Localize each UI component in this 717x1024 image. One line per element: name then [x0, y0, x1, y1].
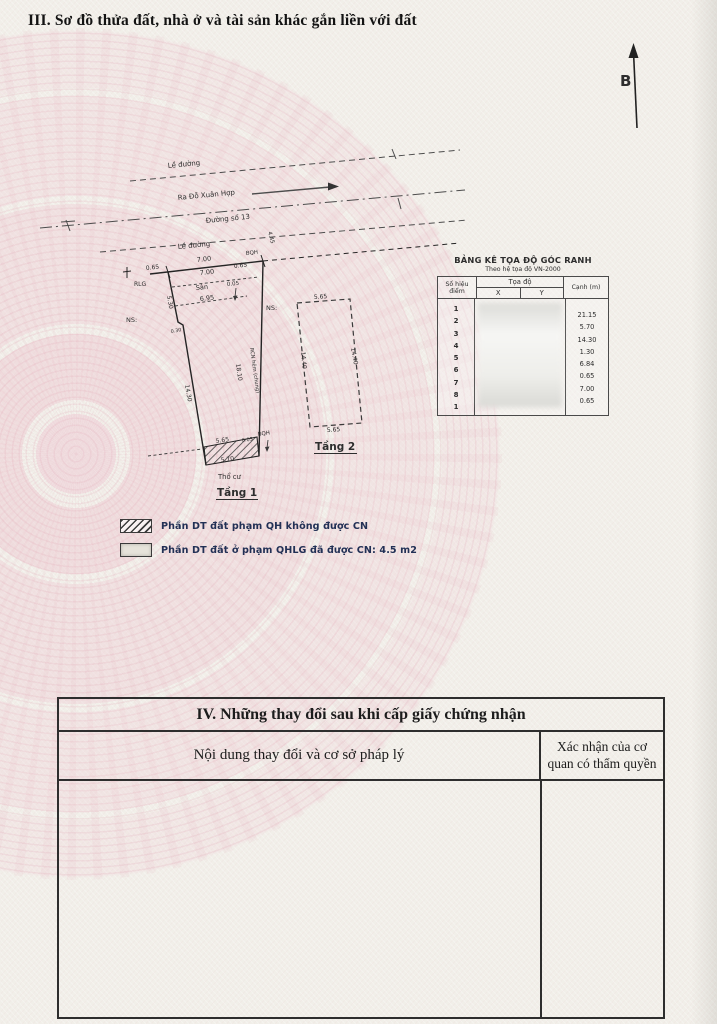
dim-right-side: 18.10	[234, 363, 243, 381]
col-authority-confirmation: Xác nhận của cơ quan có thẩm quyền	[541, 732, 663, 779]
col-point-number: Số hiệu điểm	[438, 277, 477, 298]
mark-rlg: RLG	[134, 281, 147, 288]
section4-table: IV. Những thay đổi sau khi cấp giấy chứn…	[57, 697, 665, 1019]
col-y: Y	[521, 288, 564, 298]
redacted-coordinates	[475, 299, 565, 415]
dim-offset-right: 0.65	[233, 262, 247, 270]
floor2-dim-left: 14.40	[299, 351, 308, 369]
bqh-arrowhead	[265, 447, 270, 453]
floor1-outline	[123, 243, 460, 465]
col-change-content: Nội dung thay đổi và cơ sở pháp lý	[59, 732, 541, 779]
sidewalk-top-label: Lề đường	[167, 159, 200, 170]
floor1-inner-lines	[148, 277, 268, 456]
page-edge-shadow	[691, 0, 717, 1024]
dim-left-jog: 0.30	[170, 327, 182, 335]
floor2-dim-bottom: 5.65	[327, 426, 341, 434]
legend-item-2: Phần DT đất ở phạm QHLG đã được CN: 4.5 …	[120, 543, 417, 557]
dim-offset-left: 0.65	[145, 264, 159, 272]
dim-hatch-bottom: 5.70	[220, 455, 234, 464]
point-numbers: 12 34 56 78 1	[438, 299, 475, 415]
dim-gap-top: 0.05	[227, 281, 240, 288]
sidewalk-bottom-label: Lề đường	[177, 240, 210, 251]
north-label: B	[620, 72, 631, 90]
floor2-dim-top: 5.65	[314, 293, 328, 301]
edge-lengths: 21.155.70 14.301.30 6.840.65 7.000.65	[565, 299, 608, 415]
floor1-label: Tầng 1	[217, 487, 257, 499]
mark-ns-left: NS:	[126, 316, 137, 324]
light-swatch-icon	[120, 543, 152, 557]
legend: Phần DT đất phạm QH không được CN Phần D…	[120, 519, 417, 567]
land-type-label: Thổ cư	[217, 472, 242, 481]
legend-item-1: Phần DT đất phạm QH không được CN	[120, 519, 417, 533]
section4-title: IV. Những thay đổi sau khi cấp giấy chứn…	[59, 699, 663, 730]
dim-4-45: 4.45	[266, 231, 275, 245]
col-coordinates: Tọa độ	[477, 277, 563, 288]
legend-item-1-label: Phần DT đất phạm QH không được CN	[161, 521, 368, 532]
floor2-dim-right: 14.40	[349, 347, 359, 365]
dim-left-upper: 5.30	[165, 295, 174, 310]
north-arrow: B	[620, 43, 639, 128]
mark-bqh-top: BQH	[246, 250, 259, 257]
mark-ns-right: NS:	[266, 304, 277, 312]
mark-bqh-bottom: BQH	[257, 430, 270, 438]
dim-left-lower: 14.30	[183, 384, 193, 402]
change-content-cell	[59, 781, 542, 1017]
hatched-swatch-icon	[120, 519, 152, 533]
direction-arrowhead	[328, 183, 339, 191]
coord-table-subtitle: Theo hệ tọa độ VN-2000	[437, 266, 609, 273]
dim-inner-width: 6.95	[199, 294, 214, 303]
gap-arrowhead	[233, 296, 238, 302]
street-name-label: Đường số 13	[205, 213, 250, 225]
yard-label: Sân	[195, 283, 208, 292]
coordinate-table: BẢNG KÊ TỌA ĐỘ GÓC RANH Theo hệ tọa độ V…	[437, 255, 609, 416]
dim-frontage-inner: 7.00	[199, 268, 214, 277]
section4-empty-rows	[59, 779, 663, 1017]
confirmation-cell	[542, 781, 663, 1017]
col-x: X	[477, 288, 521, 298]
legend-item-2-label: Phần DT đất ở phạm QHLG đã được CN: 4.5 …	[161, 545, 417, 556]
direction-label: Ra Đỗ Xuân Hợp	[177, 187, 235, 202]
street-lines	[40, 149, 468, 252]
floor2-label: Tầng 2	[315, 441, 355, 453]
dim-frontage: 7.00	[196, 255, 211, 264]
coord-table-title: BẢNG KÊ TỌA ĐỘ GÓC RANH	[437, 255, 609, 265]
col-edge-length: Cạnh (m)	[563, 277, 608, 298]
right-side-note: RCN hẻm (chung)	[248, 347, 261, 393]
